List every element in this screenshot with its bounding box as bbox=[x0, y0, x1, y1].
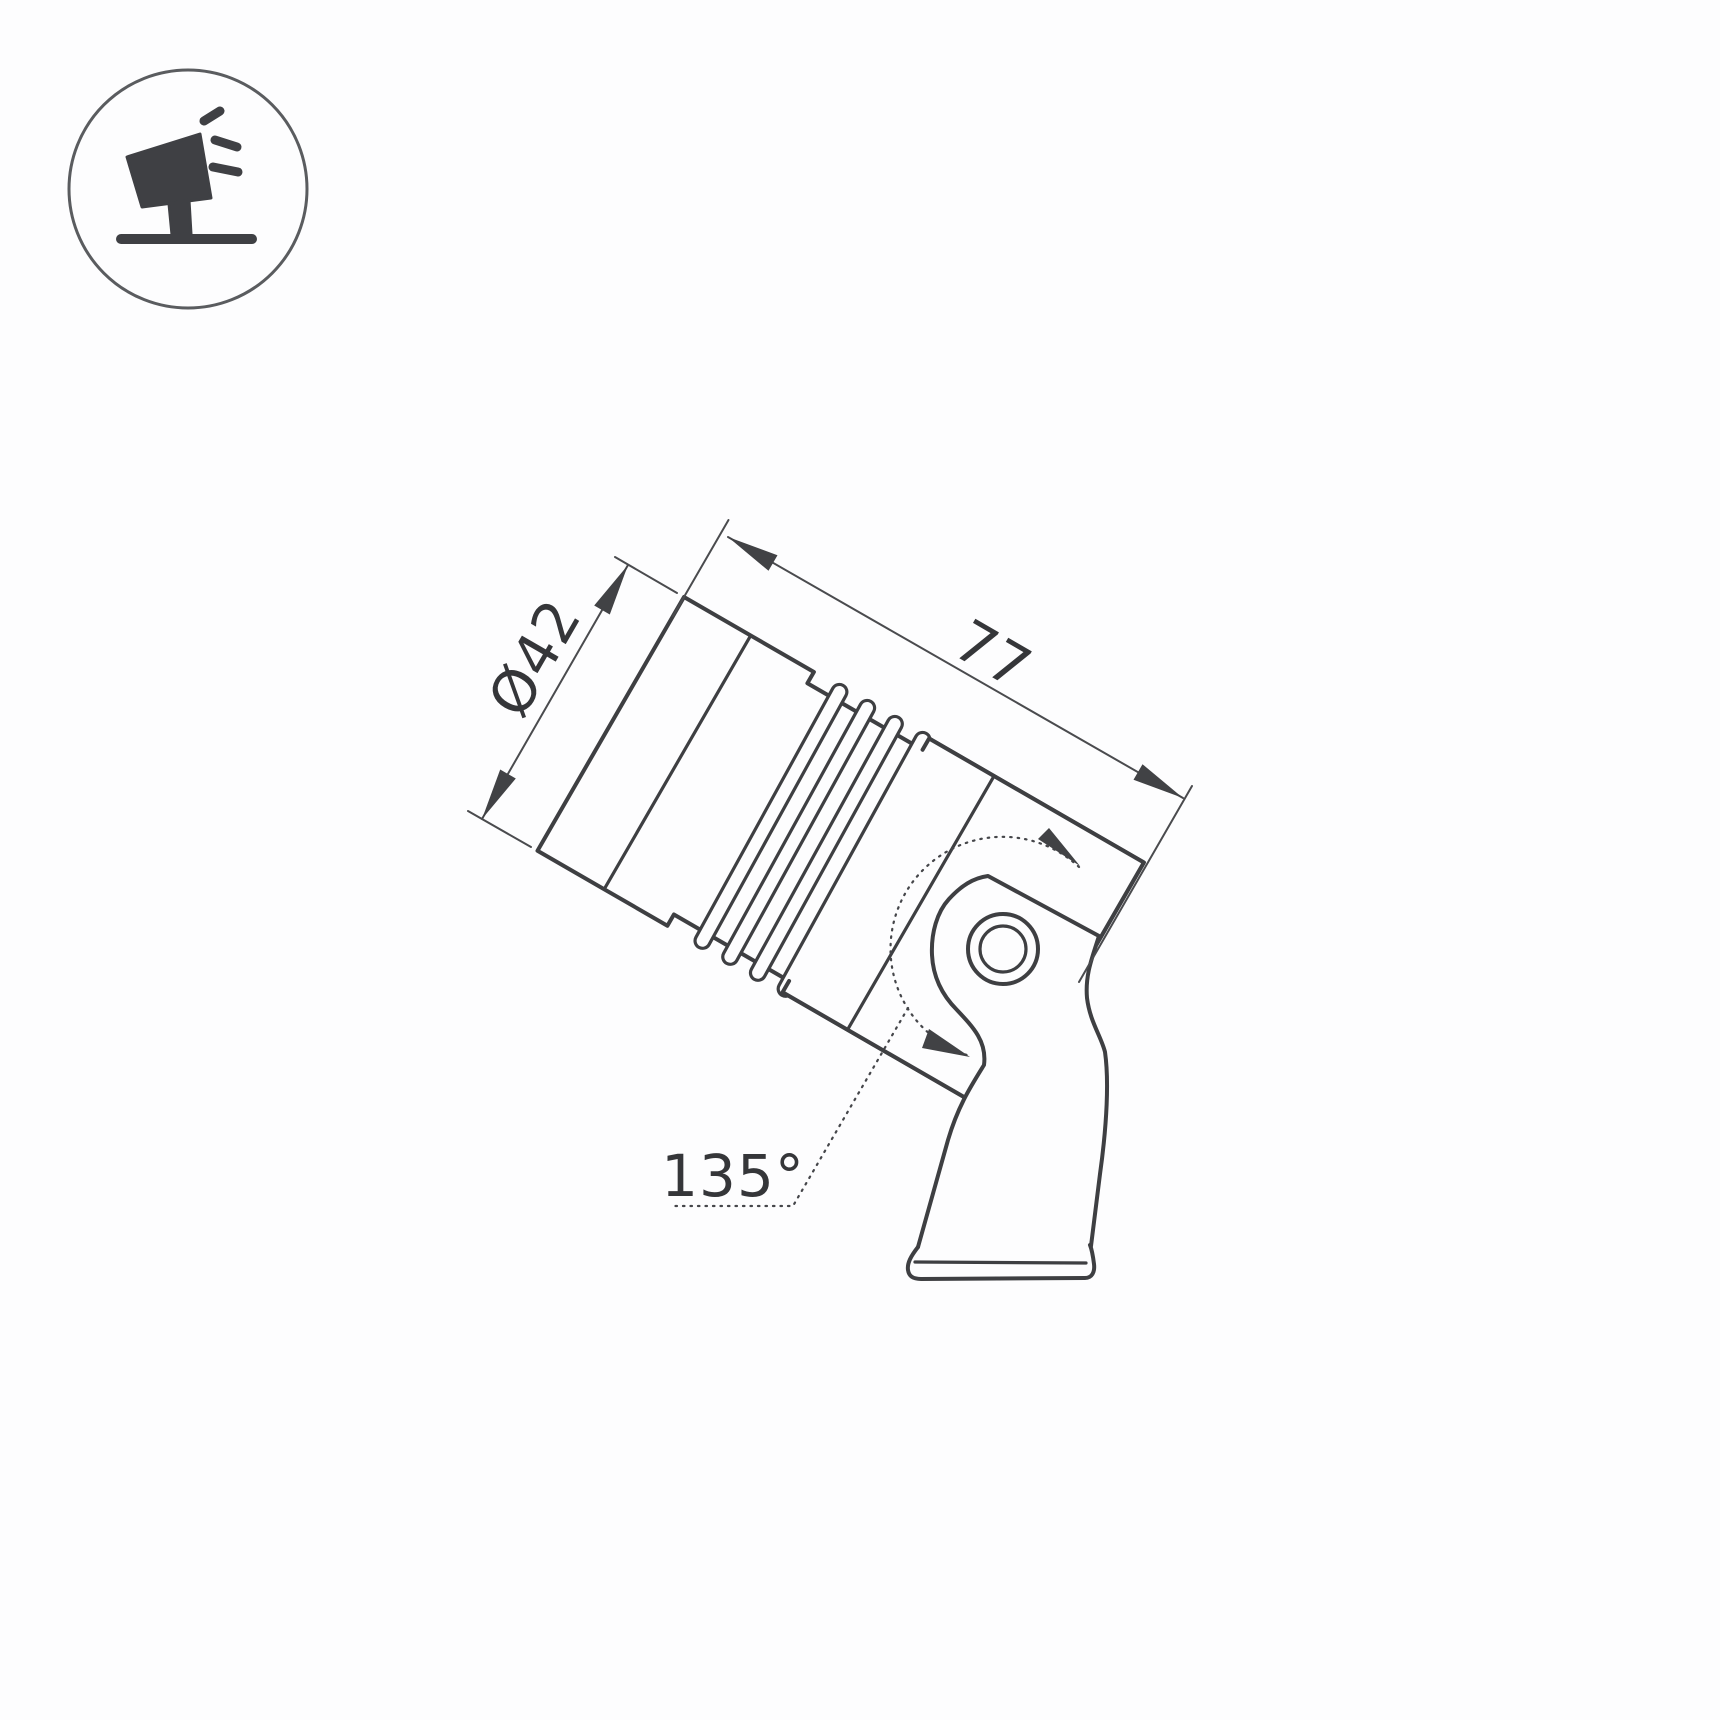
arrowhead bbox=[482, 770, 516, 820]
angle-label: 135° bbox=[661, 1142, 805, 1210]
pivot-joint bbox=[968, 914, 1038, 984]
base-plate-top-edge bbox=[915, 1262, 1086, 1263]
product-dimension-drawing: Ø42 77 135° bbox=[0, 0, 1720, 1720]
spotlight-post-icon bbox=[169, 200, 191, 235]
extension-line bbox=[673, 520, 729, 616]
arrowhead bbox=[728, 537, 778, 571]
length-label: 77 bbox=[943, 606, 1043, 703]
extension-line bbox=[468, 811, 531, 847]
drawing-canvas: Ø42 77 135° bbox=[0, 0, 1720, 1720]
diameter-label: Ø42 bbox=[475, 588, 595, 728]
spotlight-icon-badge bbox=[69, 70, 307, 308]
pivot-bolt bbox=[980, 926, 1026, 972]
arrowhead bbox=[594, 565, 628, 615]
arrowhead bbox=[1134, 764, 1184, 798]
ground-base bbox=[908, 1245, 1094, 1279]
light-ray-icon bbox=[213, 167, 238, 172]
